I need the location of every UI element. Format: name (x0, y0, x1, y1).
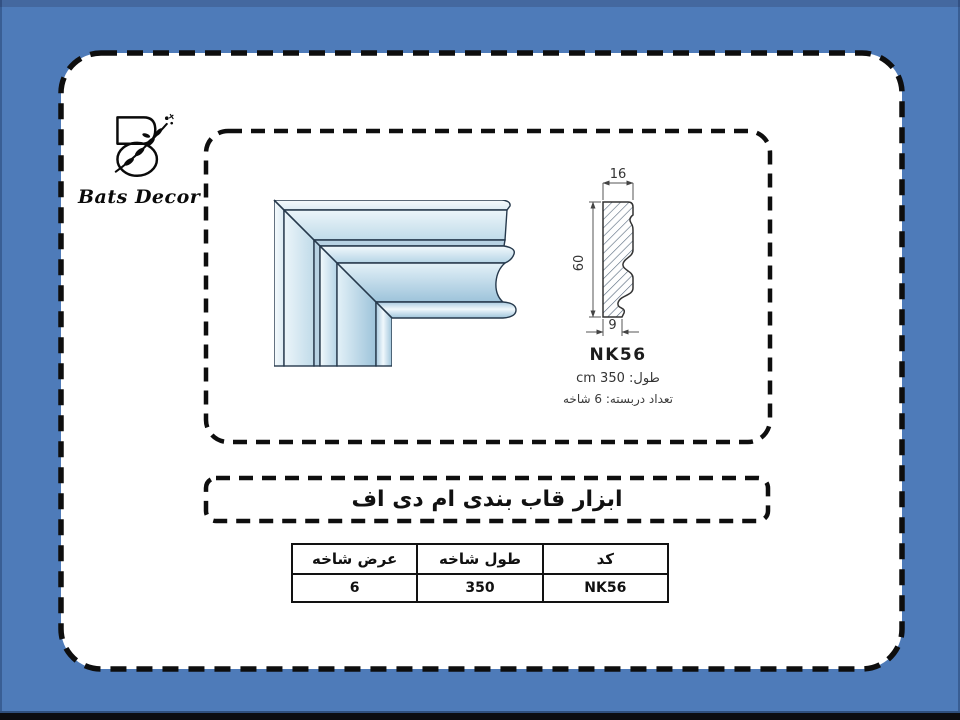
brand-name: Bats Decor (78, 186, 198, 208)
molding-corner-illustration (260, 186, 525, 376)
dim-top-label: 16 (610, 167, 627, 182)
spec-table-value-row: 6 350 NK56 (292, 574, 668, 602)
spec-table-header-row: عرض شاخه طول شاخه کد (292, 544, 668, 574)
drawing-labels: NK56 طول: 350 cm تعداد دربسته: 6 شاخه (533, 345, 703, 406)
profile-drawing: 16 60 9 (573, 156, 673, 351)
length-label: طول: 350 cm (533, 371, 703, 386)
slide-bottom-border (0, 711, 960, 720)
catalog-slide: { "brand": { "name": "Bats Decor" }, "ti… (0, 0, 960, 720)
value-code: NK56 (543, 574, 668, 602)
dim-bottom-label: 9 (608, 318, 616, 333)
slide-left-border (0, 0, 2, 720)
pack-count-label: تعداد دربسته: 6 شاخه (533, 392, 703, 406)
value-branch-length: 350 (417, 574, 542, 602)
dim-side-label: 60 (573, 255, 587, 272)
brand-logo: Bats Decor (78, 110, 198, 208)
header-branch-length: طول شاخه (417, 544, 542, 574)
spec-table: عرض شاخه طول شاخه کد 6 350 NK56 (291, 543, 669, 603)
slide-top-border (0, 0, 960, 7)
product-code: NK56 (533, 345, 703, 365)
brand-logo-icon (101, 110, 175, 184)
page-title: ابزار قاب بندی ام دی اف (351, 487, 622, 512)
header-code: کد (543, 544, 668, 574)
value-branch-width: 6 (292, 574, 417, 602)
header-branch-width: عرض شاخه (292, 544, 417, 574)
title-bar: ابزار قاب بندی ام دی اف (203, 475, 771, 524)
product-image-area: 16 60 9 NK56 طول: 350 cm تعداد دربسته: 6… (203, 128, 773, 445)
